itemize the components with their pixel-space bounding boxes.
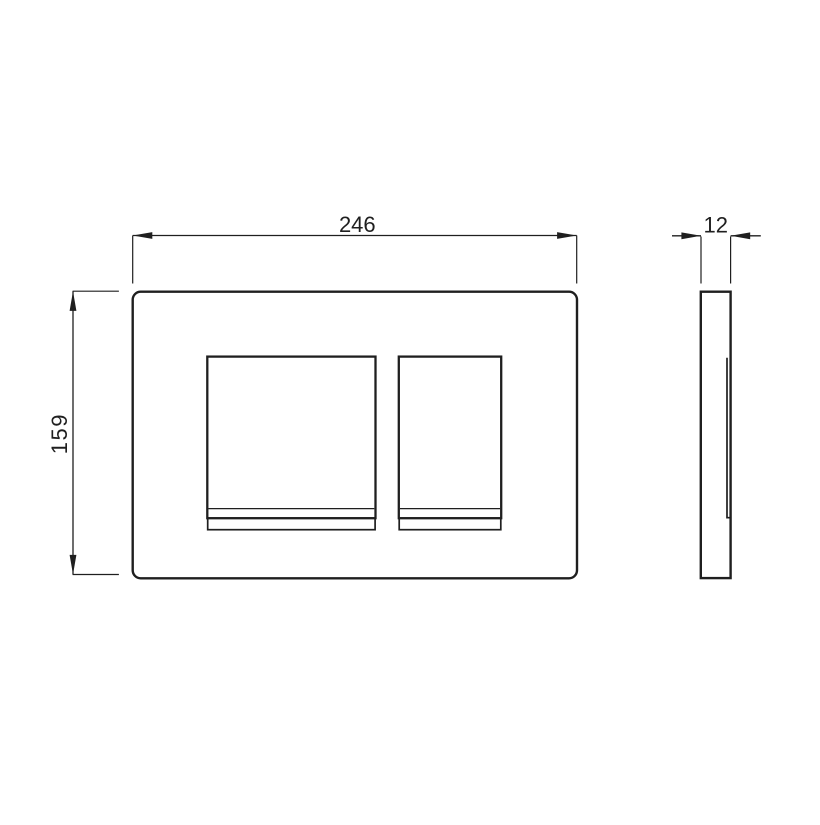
svg-text:159: 159 [47, 413, 72, 454]
svg-text:12: 12 [704, 212, 728, 237]
svg-text:246: 246 [339, 212, 376, 237]
